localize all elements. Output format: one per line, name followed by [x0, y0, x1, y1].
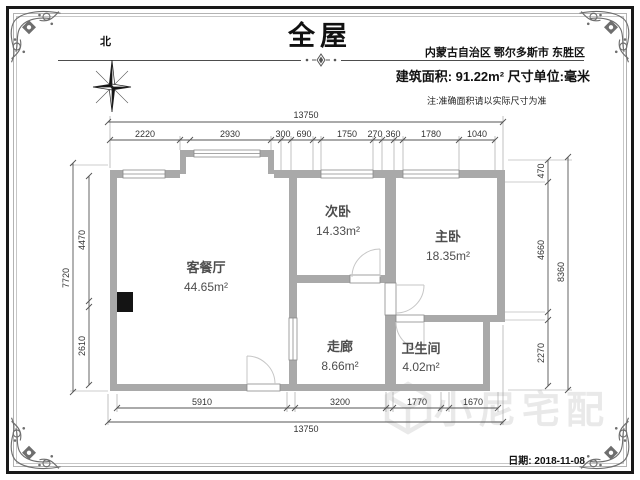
room-area-label: 4.02m²: [402, 360, 439, 374]
room-area-label: 8.66m²: [321, 359, 358, 373]
room-name-label: 主卧: [435, 229, 461, 244]
room-name-label: 次卧: [325, 204, 351, 219]
room-area-label: 44.65m²: [184, 280, 228, 294]
dim-label: 2270: [536, 343, 546, 363]
floor-plan-drawing: 小尼宅配: [0, 0, 640, 480]
dim-label: 2610: [77, 336, 87, 356]
door-jamb: [247, 384, 280, 391]
master-door-swing: [396, 285, 424, 313]
dim-label: 300: [275, 129, 290, 139]
dim-label: 13750: [293, 110, 318, 120]
dim-label: 2930: [220, 129, 240, 139]
dimension-lines: [70, 119, 571, 425]
floor-plan-page: { "header": { "title": "全屋", "north_labe…: [0, 0, 640, 480]
dim-label: 270: [367, 129, 382, 139]
structural-column: [117, 292, 133, 312]
dim-label: 4470: [77, 230, 87, 250]
watermark-text: 小尼宅配: [434, 389, 610, 432]
dim-label: 3200: [330, 397, 350, 407]
dim-label: 7720: [61, 268, 71, 288]
door-jamb: [396, 315, 424, 322]
dim-label: 13750: [293, 424, 318, 434]
dim-label: 5910: [192, 397, 212, 407]
dim-label: 2220: [135, 129, 155, 139]
dim-label: 1040: [467, 129, 487, 139]
room-name-label: 走廊: [327, 339, 353, 354]
bedroom2-door-swing: [352, 249, 380, 277]
walls: [110, 150, 505, 391]
extension-lines: [70, 116, 572, 425]
dim-label: 1750: [337, 129, 357, 139]
dim-label: 690: [296, 129, 311, 139]
room-labels: 客餐厅 44.65m² 次卧 14.33m² 主卧 18.35m² 走廊 8.6…: [184, 204, 470, 374]
dim-label: 1780: [421, 129, 441, 139]
dim-label: 360: [385, 129, 400, 139]
room-area-label: 18.35m²: [426, 249, 470, 263]
room-area-label: 14.33m²: [316, 224, 360, 238]
door-jamb: [385, 283, 396, 315]
room-name-label: 卫生间: [401, 341, 440, 356]
room-name-label: 客餐厅: [186, 260, 225, 275]
dim-label: 470: [536, 163, 546, 178]
dim-label: 1770: [407, 397, 427, 407]
dim-label: 1670: [463, 397, 483, 407]
date-text: 日期: 2018-11-08: [508, 452, 585, 467]
dim-label: 8360: [556, 262, 566, 282]
entry-door-swing: [247, 356, 275, 384]
door-jamb: [350, 275, 380, 283]
dim-label: 4660: [536, 240, 546, 260]
